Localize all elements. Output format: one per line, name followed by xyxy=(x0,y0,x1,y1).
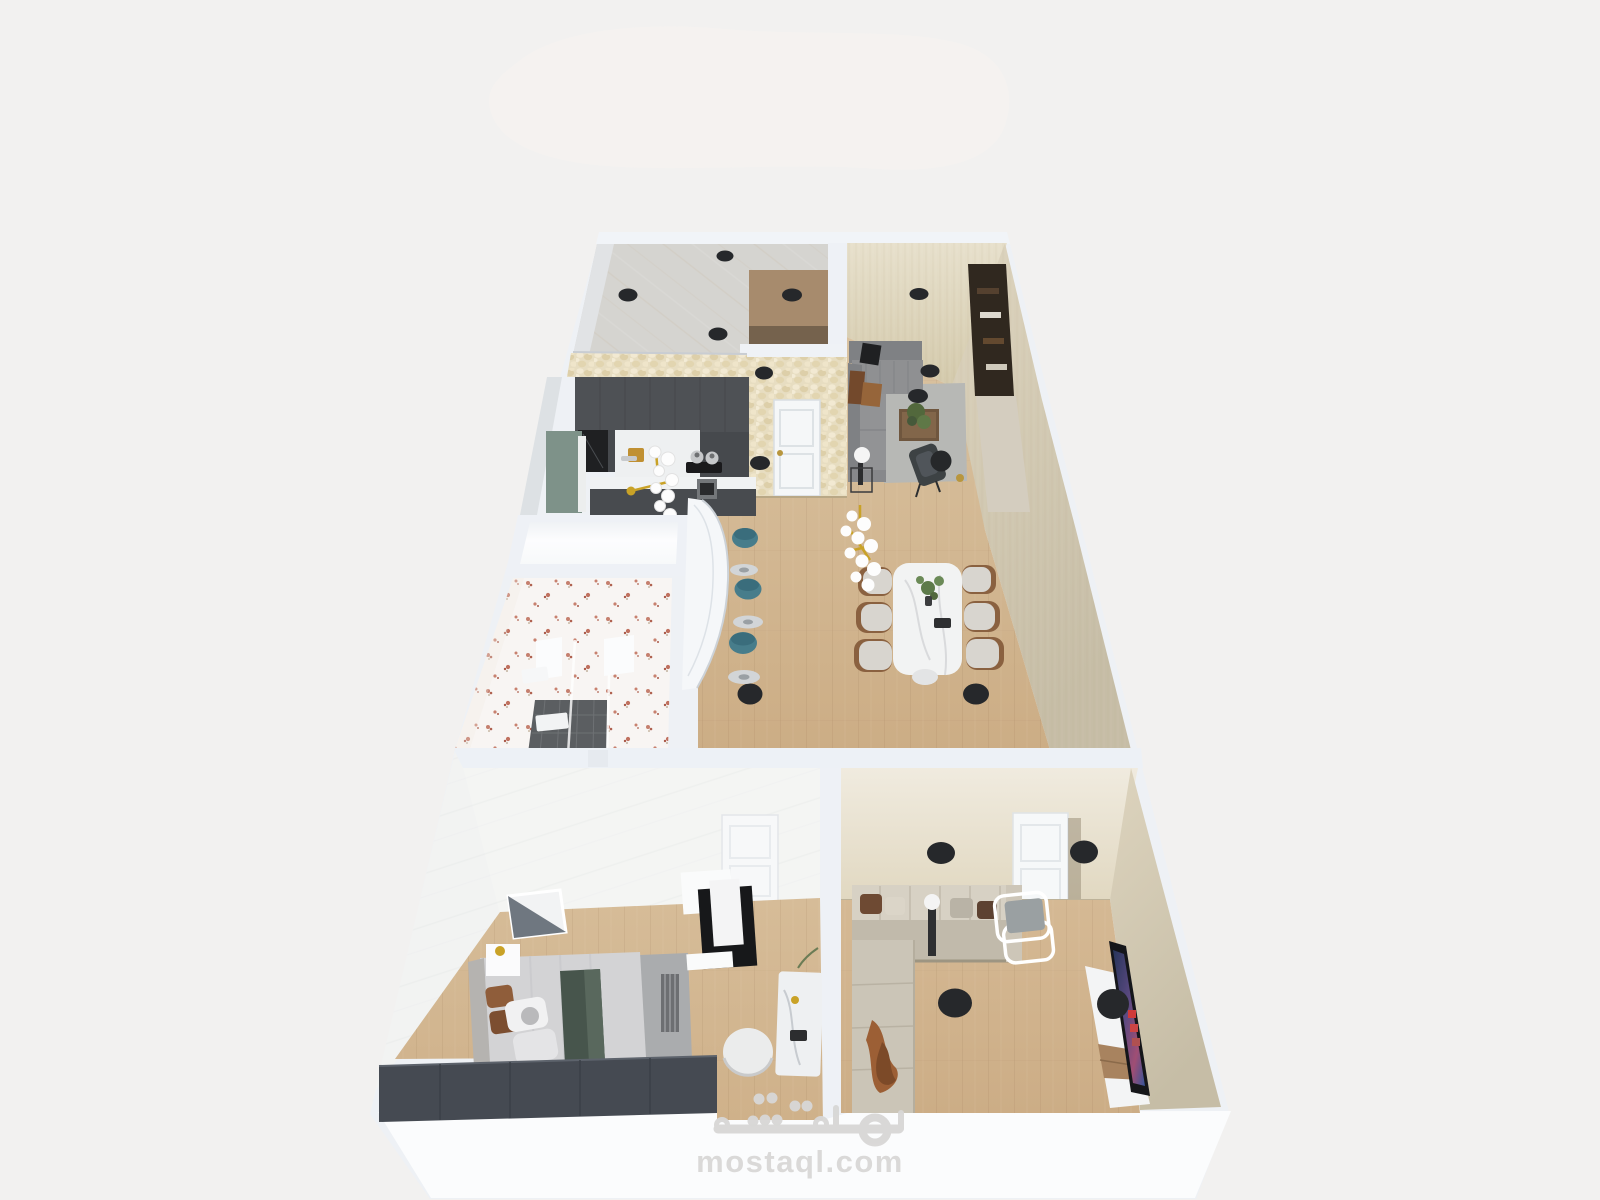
svg-text:mostaql.com: mostaql.com xyxy=(696,1144,904,1179)
